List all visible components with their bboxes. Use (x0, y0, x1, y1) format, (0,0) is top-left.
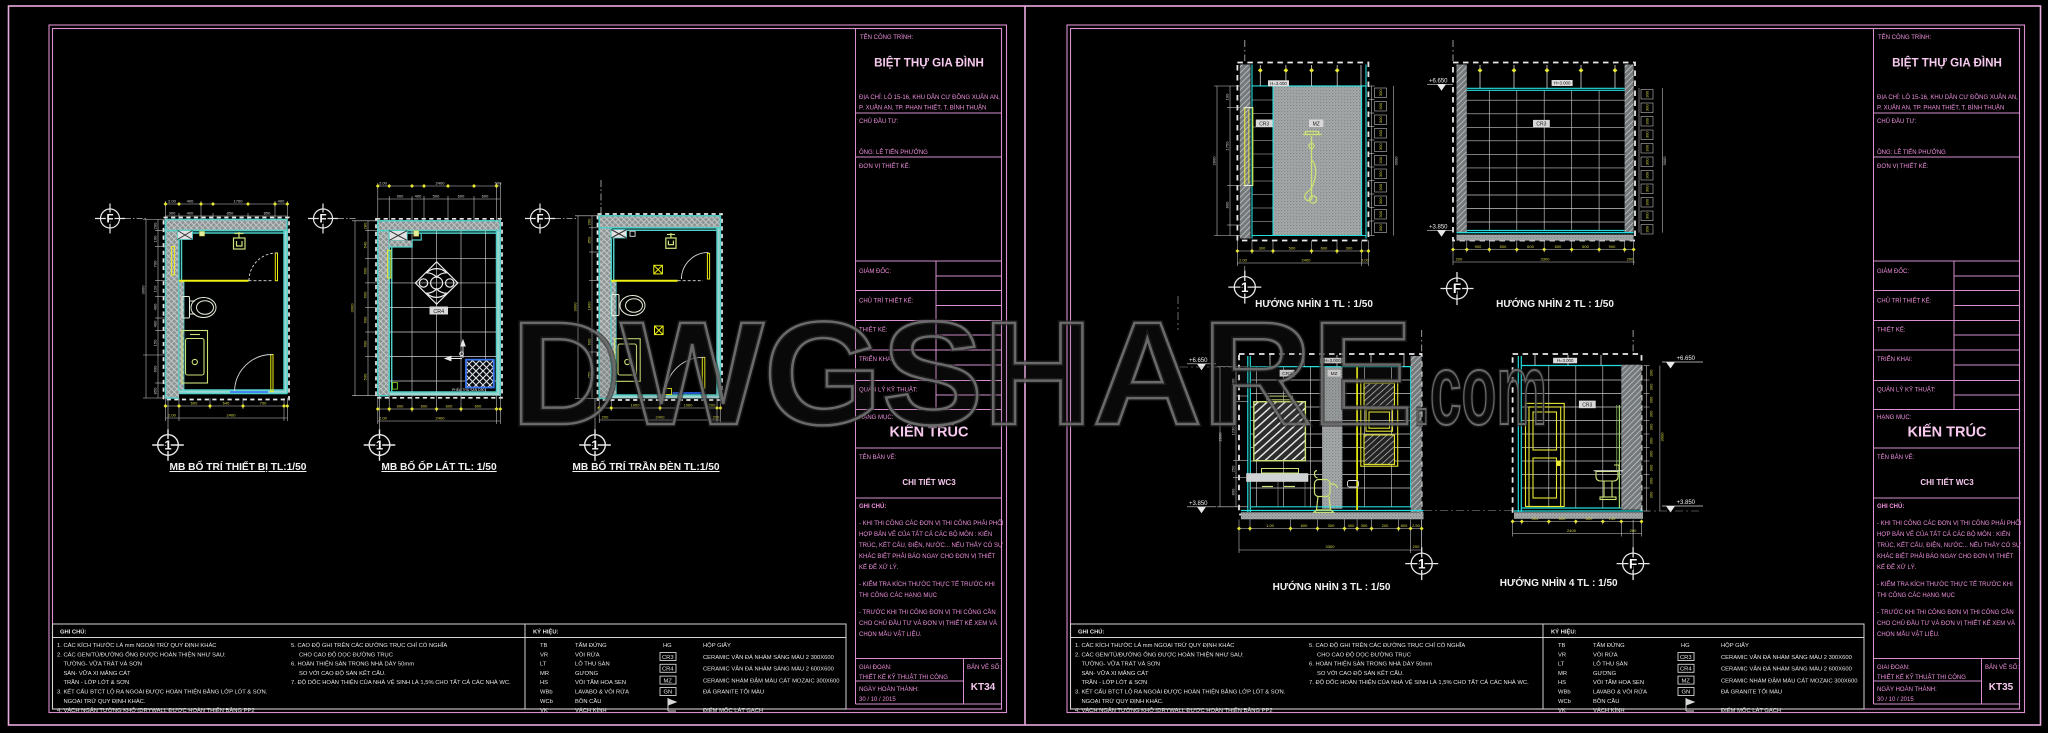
svg-text:2400: 2400 (436, 181, 446, 186)
svg-text:300: 300 (1346, 246, 1353, 251)
svg-text:CERAMIC VÂN ĐÁ NHÁM SÁNG MÀU: CERAMIC VÂN ĐÁ NHÁM SÁNG MÀU 2 600X600 (703, 666, 834, 673)
svg-text:600: 600 (191, 401, 198, 406)
svg-text:1: 1 (1418, 556, 1426, 571)
svg-text:CR3: CR3 (662, 655, 674, 661)
svg-text:300: 300 (1361, 523, 1368, 528)
svg-text:100: 100 (153, 235, 158, 242)
svg-text:1.00: 1.00 (1266, 523, 1275, 528)
svg-text:HS: HS (540, 680, 548, 686)
svg-text:400: 400 (415, 194, 422, 199)
svg-text:2400: 2400 (436, 416, 446, 421)
svg-text:KT35: KT35 (1989, 682, 2014, 693)
svg-text:2.00: 2.00 (379, 181, 388, 186)
svg-text:600: 600 (153, 365, 158, 372)
svg-text:O: O (459, 351, 464, 358)
svg-text:CERAMIC VÂN ĐÁ NHÁM SÁNG MÀU: CERAMIC VÂN ĐÁ NHÁM SÁNG MÀU 2 300X600 (703, 654, 834, 661)
svg-text:HỢP BẢN VẼ CỦA TẤT CẢ CÁC BỘ M: HỢP BẢN VẼ CỦA TẤT CẢ CÁC BỘ MÔN : KIẾN (859, 531, 992, 538)
svg-text:MB BỐ TRÍ THIẾT BỊ TL:1/50: MB BỐ TRÍ THIẾT BỊ TL:1/50 (170, 459, 307, 473)
svg-text:1750: 1750 (1225, 141, 1230, 151)
svg-text:140: 140 (1609, 516, 1616, 521)
svg-text:300: 300 (1649, 396, 1654, 403)
svg-text:GHI CHÚ:: GHI CHÚ: (60, 629, 86, 636)
svg-text:2. CÁC GEN/TỦ/ĐƯỜNG ỐNG ĐƯỢC H: 2. CÁC GEN/TỦ/ĐƯỜNG ỐNG ĐƯỢC HOÀN THIỆN … (57, 650, 226, 658)
svg-text:2.00: 2.00 (168, 199, 177, 204)
svg-text:TRẦN - LỚP LÓT & SƠN: TRẦN - LỚP LÓT & SƠN (57, 679, 129, 686)
svg-text:500: 500 (433, 194, 440, 199)
svg-text:GIAI ĐOẠN:: GIAI ĐOẠN: (859, 665, 892, 671)
svg-text:3000: 3000 (141, 285, 146, 295)
svg-text:VR: VR (540, 652, 548, 658)
svg-text:300: 300 (1378, 89, 1383, 96)
svg-text:TƯỜNG- VỮA TRÁT VÀ SƠN: TƯỜNG- VỮA TRÁT VÀ SƠN (57, 661, 142, 668)
svg-text:3300: 3300 (1541, 257, 1551, 262)
svg-text:H=3.000: H=3.000 (1554, 81, 1571, 86)
svg-text:850: 850 (227, 211, 234, 216)
svg-text:SO VỚI CAO ĐỘ SÀN KẾT CẤU.: SO VỚI CAO ĐỘ SÀN KẾT CẤU. (291, 670, 386, 677)
svg-text:GN: GN (664, 690, 673, 696)
svg-text:200: 200 (1382, 523, 1389, 528)
svg-text:+3.850: +3.850 (1429, 225, 1448, 231)
svg-text:HƯỚNG NHÌN 3 TL : 1/50: HƯỚNG NHÌN 3 TL : 1/50 (1273, 580, 1391, 593)
svg-text:300: 300 (1378, 170, 1383, 177)
svg-text:3000: 3000 (1662, 156, 1667, 166)
svg-text:THIẾT KẾ KỸ THUẬT THI CÔNG: THIẾT KẾ KỸ THUẬT THI CÔNG (859, 674, 948, 681)
svg-text:200: 200 (587, 218, 592, 225)
svg-text:MB BỐ TRÍ TRẦN ĐÈN TL:1/50: MB BỐ TRÍ TRẦN ĐÈN TL:1/50 (572, 459, 719, 473)
svg-text:PHỄU THU SÀN D90: PHỄU THU SÀN D90 (452, 387, 484, 392)
svg-text:KHÁC BIỆT PHẢI BÁO NGAY CHO ĐƠ: KHÁC BIỆT PHẢI BÁO NGAY CHO ĐƠN VỊ THIẾT (859, 552, 996, 560)
svg-text:HƯỚNG NHÌN 4 TL : 1/50: HƯỚNG NHÌN 4 TL : 1/50 (1500, 576, 1618, 589)
svg-text:2.00: 2.00 (1239, 258, 1248, 263)
svg-text:P. XUÂN AN, TP. PHAN THIẾT, T.: P. XUÂN AN, TP. PHAN THIẾT, T. BÌNH THUẬ… (859, 105, 986, 112)
svg-text:MR: MR (540, 671, 549, 677)
svg-text:400: 400 (187, 211, 194, 216)
svg-text:GHI CHÚ:: GHI CHÚ: (859, 503, 886, 510)
svg-text:400: 400 (1348, 523, 1355, 528)
svg-text:ĐÁ GRANITE TỐI MÀU: ĐÁ GRANITE TỐI MÀU (703, 689, 764, 696)
svg-text:30 / 10 / 2015: 30 / 10 / 2015 (859, 697, 896, 703)
svg-text:3. KẾT CẤU BTCT LỘ RA NGOÀI Đ: 3. KẾT CẤU BTCT LỘ RA NGOÀI ĐƯỢC HOÀN TH… (57, 688, 268, 696)
svg-text:VÒI TẮM HOA SEN: VÒI TẮM HOA SEN (575, 678, 626, 686)
svg-text:F: F (1453, 281, 1461, 296)
svg-text:TB: TB (540, 643, 548, 649)
svg-text:800: 800 (1231, 488, 1236, 495)
svg-text:600: 600 (1559, 516, 1566, 521)
svg-text:MB BỐ ỐP LÁT TL: 1/50: MB BỐ ỐP LÁT TL: 1/50 (381, 459, 497, 473)
svg-text:600: 600 (1586, 516, 1593, 521)
svg-text:640: 640 (223, 401, 230, 406)
svg-text:300: 300 (1378, 116, 1383, 123)
svg-text:600: 600 (363, 267, 368, 274)
svg-text:CERAMIC NHÁM ĐẬM MÀU CÁT MOZAI: CERAMIC NHÁM ĐẬM MÀU CÁT MOZAIC 300X600 (703, 677, 839, 684)
svg-text:280: 280 (363, 222, 368, 229)
svg-text:2400: 2400 (1567, 528, 1577, 533)
svg-text:WBb: WBb (540, 690, 553, 696)
svg-text:850: 850 (587, 236, 592, 243)
svg-text:600: 600 (1321, 246, 1328, 251)
svg-text:850: 850 (264, 211, 271, 216)
svg-text:300: 300 (1649, 491, 1654, 498)
svg-text:600: 600 (1555, 244, 1562, 249)
svg-text:- TRƯỚC KHI THI CÔNG ĐƠN VỊ TH: - TRƯỚC KHI THI CÔNG ĐƠN VỊ THI CÔNG CẦN (859, 609, 996, 616)
svg-text:7. ĐỘ DỐC HOÀN THIỆN CỦA NHÀ: 7. ĐỘ DỐC HOÀN THIỆN CỦA NHÀ VỆ SINH LÀ … (291, 678, 511, 686)
svg-text:2.50: 2.50 (1412, 523, 1421, 528)
svg-text:600: 600 (363, 291, 368, 298)
svg-text:300: 300 (1649, 437, 1654, 444)
svg-text:300: 300 (1378, 129, 1383, 136)
svg-text:600: 600 (475, 404, 482, 409)
svg-text:+3.850: +3.850 (1677, 500, 1696, 506)
svg-text:CR3: CR3 (1259, 121, 1269, 127)
svg-text:CR4: CR4 (662, 667, 674, 673)
svg-text:MZ: MZ (664, 678, 673, 684)
svg-text:2.00: 2.00 (379, 416, 388, 421)
svg-text:GƯƠNG: GƯƠNG (575, 671, 599, 677)
svg-text:300: 300 (1378, 102, 1383, 109)
svg-text:H=3.000: H=3.000 (1270, 81, 1287, 86)
svg-text:400: 400 (153, 320, 158, 327)
svg-text:CHỌN MẪU VẬT LIỆU.: CHỌN MẪU VẬT LIỆU. (859, 630, 922, 638)
svg-text:300: 300 (1649, 410, 1654, 417)
svg-text:ĐỊA CHỈ: LÔ 15-16, KHU DÂN CƯ: ĐỊA CHỈ: LÔ 15-16, KHU DÂN CƯ ĐỒNG XUÂN … (859, 94, 1000, 101)
svg-text:TRÚC, KẾT CẤU, ĐIỆN, NƯỚC... N: TRÚC, KẾT CẤU, ĐIỆN, NƯỚC... NẾU THẤY CÓ… (859, 541, 1003, 549)
svg-text:790: 790 (260, 401, 267, 406)
svg-text:KÝ HIỆU:: KÝ HIỆU: (533, 628, 559, 636)
svg-text:500: 500 (363, 373, 368, 380)
svg-text:900: 900 (397, 404, 404, 409)
svg-text:4. VÁCH NGĂN TƯỜNG KHÔ (DRYWA: 4. VÁCH NGĂN TƯỜNG KHÔ (DRYWALL ĐƯỢC HOÀ… (57, 706, 255, 714)
svg-text:CR3: CR3 (1582, 403, 1592, 409)
svg-text:2400: 2400 (1302, 258, 1312, 263)
svg-text:GIÁM ĐỐC:: GIÁM ĐỐC: (859, 268, 891, 275)
svg-text:BIỆT THỰ GIA ĐÌNH: BIỆT THỰ GIA ĐÌNH (874, 57, 984, 70)
svg-text:500: 500 (1582, 244, 1589, 249)
svg-text:1700: 1700 (234, 199, 244, 204)
svg-text:600: 600 (482, 194, 489, 199)
svg-text:BẢN VẼ SỐ:: BẢN VẼ SỐ: (967, 664, 1001, 671)
svg-text:6. HOÀN THIỆN SÀN TRONG NHÀ D: 6. HOÀN THIỆN SÀN TRONG NHÀ DÀY 50mm (291, 660, 414, 668)
svg-text:THI CÔNG CÁC HẠNG MỤC: THI CÔNG CÁC HẠNG MỤC (859, 592, 938, 599)
svg-text:KẾ ĐỂ XỬ LÝ.: KẾ ĐỂ XỬ LÝ. (859, 564, 899, 571)
svg-text:.com: .com (1414, 334, 1547, 446)
svg-text:300: 300 (1378, 210, 1383, 217)
svg-text:F: F (106, 214, 113, 226)
svg-text:600: 600 (363, 316, 368, 323)
svg-text:VK: VK (540, 708, 548, 714)
svg-text:3000: 3000 (1394, 156, 1399, 166)
svg-text:300: 300 (1378, 156, 1383, 163)
svg-text:100: 100 (1225, 93, 1230, 100)
svg-text:CR3: CR3 (1536, 122, 1546, 128)
svg-text:1: 1 (164, 438, 171, 453)
svg-text:800: 800 (1401, 523, 1408, 528)
svg-text:300: 300 (1649, 423, 1654, 430)
svg-text:NGÀY HOÀN THÀNH:: NGÀY HOÀN THÀNH: (859, 686, 919, 693)
svg-text:600: 600 (421, 404, 428, 409)
svg-text:HG: HG (663, 643, 672, 649)
svg-text:2400: 2400 (227, 413, 237, 418)
svg-text:400: 400 (153, 303, 158, 310)
svg-text:600: 600 (1527, 244, 1534, 249)
svg-text:TÊN CÔNG TRÌNH:: TÊN CÔNG TRÌNH: (860, 33, 914, 41)
svg-text:2.00: 2.00 (168, 413, 177, 418)
svg-text:300: 300 (1378, 197, 1383, 204)
svg-text:+3.850: +3.850 (1189, 501, 1208, 507)
svg-text:640: 640 (363, 241, 368, 248)
svg-text:+6.650: +6.650 (1429, 79, 1448, 85)
svg-text:300: 300 (1649, 464, 1654, 471)
svg-text:304: 304 (1532, 516, 1539, 521)
svg-text:VÁCH KÍNH: VÁCH KÍNH (575, 707, 607, 714)
svg-text:KT34: KT34 (971, 682, 996, 693)
svg-text:600: 600 (1301, 523, 1308, 528)
svg-text:150: 150 (153, 339, 158, 346)
svg-text:F: F (536, 214, 543, 226)
svg-text:900: 900 (1475, 244, 1482, 249)
svg-text:NGOẠI TRỪ QUY ĐỊNH KHÁC.: NGOẠI TRỪ QUY ĐỊNH KHÁC. (57, 698, 146, 705)
svg-text:3300: 3300 (1326, 544, 1336, 549)
svg-text:F: F (319, 214, 326, 226)
svg-text:BỒN CẦU: BỒN CẦU (575, 698, 601, 705)
svg-text:600: 600 (363, 340, 368, 347)
svg-text:1. CÁC KÍCH THƯỚC LÀ mm NGOẠI: 1. CÁC KÍCH THƯỚC LÀ mm NGOẠI TRỪ QUY ĐỊ… (57, 642, 217, 649)
svg-text:1: 1 (376, 438, 383, 453)
svg-text:250: 250 (1231, 465, 1236, 472)
svg-text:200: 200 (1627, 257, 1634, 262)
svg-text:200: 200 (1456, 257, 1463, 262)
svg-text:300: 300 (1649, 369, 1654, 376)
svg-text:CHỦ ĐẦU TƯ:: CHỦ ĐẦU TƯ: (859, 118, 899, 125)
svg-text:200: 200 (153, 222, 158, 229)
svg-text:300: 300 (1649, 477, 1654, 484)
svg-text:200: 200 (1413, 544, 1420, 549)
svg-text:H=3.000: H=3.000 (1557, 358, 1574, 363)
svg-text:300: 300 (1378, 183, 1383, 190)
svg-text:ĐƠN VỊ THIẾT KẾ:: ĐƠN VỊ THIẾT KẾ: (859, 163, 911, 170)
svg-text:LAVABO & VÒI RỬA: LAVABO & VÒI RỬA (575, 689, 629, 696)
svg-text:3000: 3000 (1660, 432, 1665, 442)
svg-text:2800: 2800 (1212, 156, 1217, 166)
svg-text:700: 700 (153, 260, 158, 267)
svg-text:CHO CAO ĐỘ DỌC ĐƯỜNG TRỤC: CHO CAO ĐỘ DỌC ĐƯỜNG TRỤC (291, 651, 393, 658)
svg-text:- KIỂM TRA KÍCH THƯỚC THỰC TẾ: - KIỂM TRA KÍCH THƯỚC THỰC TẾ TRƯỚC KHI (859, 581, 995, 588)
svg-text:400: 400 (278, 199, 285, 204)
svg-text:600: 600 (446, 404, 453, 409)
svg-text:VÒI RỬA: VÒI RỬA (575, 651, 600, 658)
svg-text:LT: LT (540, 662, 547, 668)
svg-text:3.00: 3.00 (1361, 258, 1370, 263)
svg-text:WCb: WCb (540, 699, 553, 705)
svg-text:ĐIỂM MỐC LÁT GẠCH: ĐIỂM MỐC LÁT GẠCH (703, 707, 763, 714)
svg-text:CR4: CR4 (433, 309, 444, 315)
svg-text:5. CAO ĐỘ GHI TRÊN CÁC ĐƯỜNG: 5. CAO ĐỘ GHI TRÊN CÁC ĐƯỜNG TRỤC CHỈ CÓ… (291, 641, 447, 649)
svg-text:CHO CHỦ ĐẦU TƯ VÀ ĐƠN VỊ THIẾT: CHO CHỦ ĐẦU TƯ VÀ ĐƠN VỊ THIẾT KẾ XEM VÀ (859, 620, 997, 627)
svg-text:F: F (1629, 556, 1637, 571)
svg-text:850: 850 (153, 387, 158, 394)
svg-text:600: 600 (458, 194, 465, 199)
svg-text:SÀN- VỮA XI MĂNG CÁT: SÀN- VỮA XI MĂNG CÁT (57, 670, 131, 677)
svg-text:300: 300 (1328, 523, 1335, 528)
svg-text:300: 300 (169, 211, 176, 216)
svg-text:HƯỚNG NHÌN 2 TL : 1/50: HƯỚNG NHÌN 2 TL : 1/50 (1496, 297, 1614, 310)
svg-text:900: 900 (1609, 244, 1616, 249)
svg-text:300: 300 (1378, 143, 1383, 150)
svg-text:LỖ THU SÀN: LỖ THU SÀN (575, 661, 610, 668)
svg-text:300: 300 (1649, 450, 1654, 457)
svg-text:TẤM ĐỨNG: TẤM ĐỨNG (575, 642, 607, 649)
svg-text:500: 500 (1500, 244, 1507, 249)
svg-text:MZ: MZ (1313, 121, 1320, 127)
svg-text:ÔNG: LÊ TIẾN PHƯỞNG: ÔNG: LÊ TIẾN PHƯỞNG (859, 148, 928, 156)
svg-text:500: 500 (1289, 246, 1296, 251)
svg-text:HỘP GIẤY: HỘP GIẤY (703, 642, 731, 649)
svg-text:- KHI THI CÔNG CÁC ĐƠN VỊ THI: - KHI THI CÔNG CÁC ĐƠN VỊ THI CÔNG PHẢI … (859, 520, 1004, 527)
svg-text:CHI TIẾT WC3: CHI TIẾT WC3 (902, 477, 956, 487)
svg-text:900: 900 (397, 194, 404, 199)
svg-text:DWGSHARE: DWGSHARE (511, 292, 1413, 456)
svg-text:120: 120 (153, 285, 158, 292)
svg-text:3000: 3000 (350, 303, 355, 313)
svg-text:300: 300 (1259, 246, 1266, 251)
svg-text:+6.650: +6.650 (1677, 356, 1696, 362)
svg-text:400: 400 (187, 199, 194, 204)
svg-text:300: 300 (1378, 224, 1383, 231)
svg-text:800: 800 (1225, 201, 1230, 208)
svg-text:300: 300 (1649, 383, 1654, 390)
